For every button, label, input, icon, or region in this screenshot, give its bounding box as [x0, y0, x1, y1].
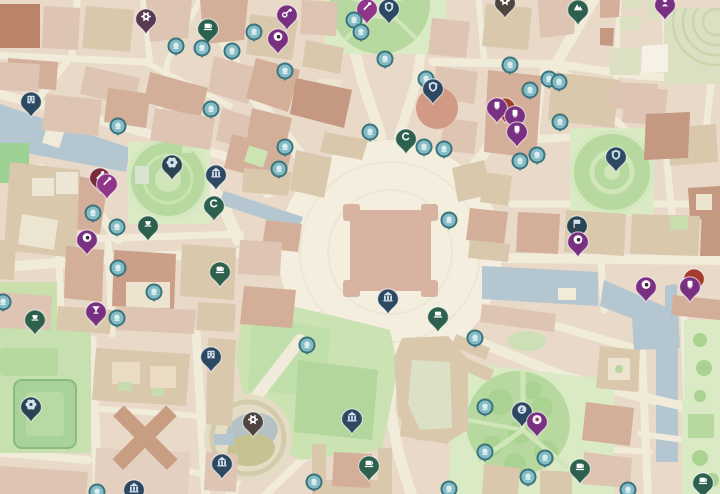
svg-text:£: £ — [520, 407, 524, 414]
